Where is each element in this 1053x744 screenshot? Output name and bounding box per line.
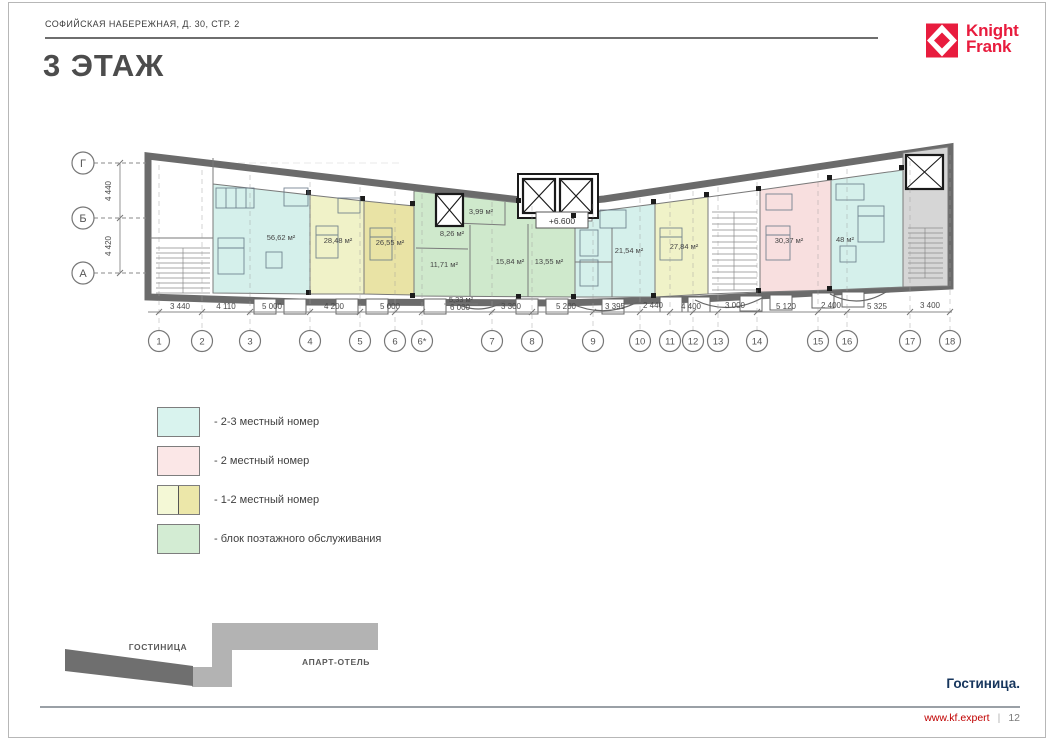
vertical-dimension: 4 420: [104, 235, 113, 256]
column-marker: 12: [683, 331, 704, 352]
dimension-label: 5 325: [867, 302, 888, 311]
dimension-label: 3 300: [501, 302, 522, 311]
room-26-55: [364, 201, 414, 295]
room-48: [831, 170, 903, 290]
dimension-label: 4 110: [216, 302, 236, 311]
dimension-label: 5 120: [776, 302, 797, 311]
column-marker: 14: [747, 331, 768, 352]
svg-text:3: 3: [247, 337, 252, 348]
column-marker: 17: [900, 331, 921, 352]
column-marker: 2: [192, 331, 213, 352]
column-marker: 15: [808, 331, 829, 352]
slide-page: СОФИЙСКАЯ НАБЕРЕЖНАЯ, Д. 30, СТР. 2 3 ЭТ…: [0, 0, 1053, 744]
room-label: 21,54 м²: [615, 246, 644, 255]
page-number: 12: [1008, 712, 1020, 724]
svg-text:1: 1: [156, 337, 161, 348]
svg-text:14: 14: [752, 337, 763, 348]
dimension-label: 3 395: [605, 302, 626, 311]
svg-text:5: 5: [357, 337, 362, 348]
dimension-label: 3 440: [170, 302, 191, 311]
svg-text:15: 15: [813, 337, 824, 348]
room-label: 11,71 м²: [430, 260, 458, 269]
svg-text:18: 18: [945, 337, 956, 348]
site-map-hotel-label: ГОСТИНИЦА: [129, 642, 188, 652]
column-marker: 3: [240, 331, 261, 352]
dimension-label: 5 000: [262, 302, 283, 311]
column-markers: 1 2 3 4 5 6 6* 7 8 9 10 11 12 13 14 15 1…: [149, 331, 961, 352]
room-label: 48 м²: [836, 235, 855, 244]
site-map-hotel-shape: [65, 649, 193, 686]
dimension-label: 3 400: [920, 301, 941, 310]
room-label: 30,37 м²: [775, 236, 804, 245]
site-map: ГОСТИНИЦА АПАРТ-ОТЕЛЬ: [65, 623, 378, 687]
column-marker: 1: [149, 331, 170, 352]
column-marker: 13: [708, 331, 729, 352]
column-marker: 5: [350, 331, 371, 352]
room-label: 26,55 м²: [376, 238, 405, 247]
svg-text:4: 4: [307, 337, 312, 348]
row-axes: Г Б А 4 440 4 420: [72, 152, 146, 284]
axis-label: А: [79, 268, 87, 280]
column-marker: 10: [630, 331, 651, 352]
legend-swatch-cyan: [157, 407, 200, 437]
svg-text:13: 13: [713, 337, 724, 348]
svg-text:6*: 6*: [418, 337, 427, 348]
service-shaft: [436, 194, 463, 226]
vertical-dimension: 4 440: [104, 180, 113, 201]
svg-text:12: 12: [688, 337, 699, 348]
svg-text:17: 17: [905, 337, 916, 348]
dimension-label: 5 200: [556, 302, 577, 311]
room-label: 27,84 м²: [670, 242, 699, 251]
column-marker: 6*: [412, 331, 433, 352]
legend-label: - 2-3 местный номер: [214, 416, 319, 428]
dimension-label: 2 400: [821, 301, 842, 310]
legend-item-2-room: - 2 местный номер: [157, 446, 381, 476]
room-label: 15,84 м²: [496, 257, 525, 266]
column-marker: 16: [837, 331, 858, 352]
site-map-apart-hotel-shape: [192, 623, 378, 687]
footer-divider: [40, 706, 1020, 708]
dimension-label: 5 000: [380, 302, 401, 311]
footer-separator: |: [998, 712, 1001, 724]
column-marker: 9: [583, 331, 604, 352]
legend-label: - 2 местный номер: [214, 455, 309, 467]
room-label: 13,55 м²: [535, 257, 564, 266]
svg-text:7: 7: [489, 337, 494, 348]
dimension-label: 6 000: [450, 303, 471, 312]
room-label: 56,62 м²: [267, 233, 296, 242]
legend-item-1-2-room: - 1-2 местный номер: [157, 485, 381, 515]
legend: - 2-3 местный номер - 2 местный номер - …: [157, 407, 381, 563]
floor-plan: +6.600: [0, 0, 1053, 744]
column-marker: 6: [385, 331, 406, 352]
legend-swatch-green: [157, 524, 200, 554]
section-label: Гостиница.: [946, 676, 1020, 691]
legend-item-service-block: - блок поэтажного обслуживания: [157, 524, 381, 554]
svg-text:16: 16: [842, 337, 853, 348]
room-label: 28,48 м²: [324, 236, 353, 245]
svg-text:2: 2: [199, 337, 204, 348]
column-marker: 11: [660, 331, 681, 352]
legend-item-2-3-room: - 2-3 местный номер: [157, 407, 381, 437]
svg-text:11: 11: [665, 337, 675, 348]
room-label: 8,26 м²: [440, 229, 465, 238]
svg-text:10: 10: [635, 337, 646, 348]
column-marker: 4: [300, 331, 321, 352]
dimension-label: 4 200: [324, 302, 345, 311]
dimension-label: 4 400: [681, 302, 702, 311]
site-map-apart-label: АПАРТ-ОТЕЛЬ: [302, 657, 370, 667]
legend-swatch-pink: [157, 446, 200, 476]
column-marker: 18: [940, 331, 961, 352]
footer: www.kf.expert|12: [924, 712, 1020, 724]
svg-text:6: 6: [392, 337, 397, 348]
axis-label: Б: [79, 213, 86, 225]
website-link[interactable]: www.kf.expert: [924, 712, 989, 724]
svg-text:8: 8: [529, 337, 534, 348]
legend-label: - 1-2 местный номер: [214, 494, 319, 506]
elevator-right: [906, 155, 943, 189]
room-56-62: [213, 184, 310, 294]
column-marker: 8: [522, 331, 543, 352]
dimension-label: 3 000: [725, 301, 746, 310]
dimension-label: 2 440: [643, 301, 664, 310]
legend-label: - блок поэтажного обслуживания: [214, 533, 381, 545]
column-marker: 7: [482, 331, 503, 352]
room-label: 3,99 м²: [469, 207, 494, 216]
legend-swatch-yellow: [157, 485, 200, 515]
svg-text:9: 9: [590, 337, 595, 348]
axis-label: Г: [80, 158, 86, 170]
